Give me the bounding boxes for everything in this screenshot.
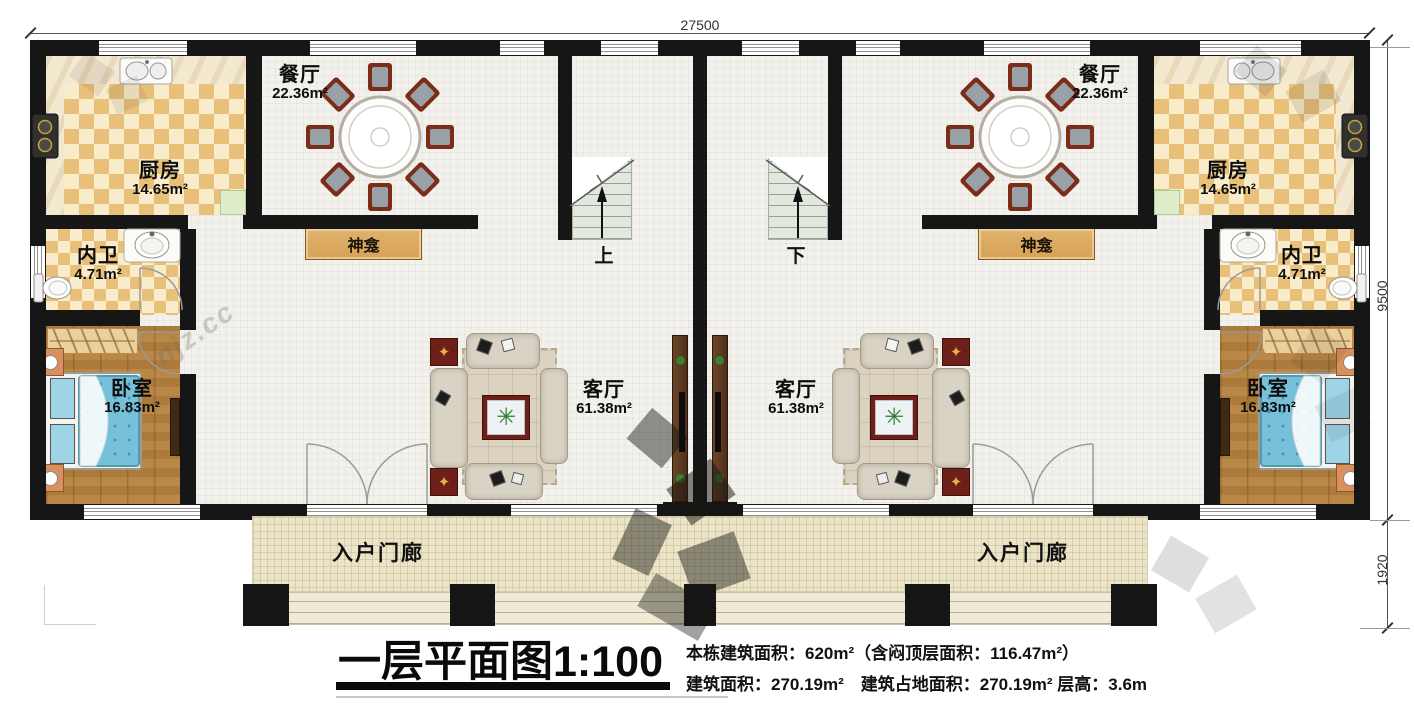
- plant-icon: ✳: [496, 406, 516, 430]
- end-table-left-top: ✦: [430, 338, 458, 366]
- window: [856, 41, 900, 55]
- dimension-extension: [1370, 47, 1410, 48]
- watermark-smudge-bottomright: [1150, 540, 1260, 635]
- room-label-bedroom-left: 卧室 16.83m²: [72, 378, 192, 417]
- info-line-1: 本栋建筑面积：620m²（含闷顶层面积：116.47m²）: [686, 639, 1079, 664]
- room-label-bathroom-right: 内卫 4.71m²: [1244, 245, 1360, 284]
- room-label-kitchen-right: 厨房 14.65m²: [1168, 160, 1288, 199]
- lamp-icon: ✦: [950, 345, 963, 360]
- room-label-living-right: 客厅 61.38m²: [736, 379, 856, 418]
- porch-label-right: 入户门廊: [958, 537, 1088, 567]
- wall-stair-left: [558, 40, 572, 240]
- shrine-right-label: 神龛: [1020, 232, 1052, 256]
- shrine-right: 神龛: [978, 228, 1095, 260]
- wall-stair-right: [828, 40, 842, 240]
- porch-column: [243, 584, 289, 626]
- wall-bath-bedroom-divider-left: [30, 310, 140, 326]
- stair-direction-left: 上: [584, 241, 624, 268]
- window: [84, 505, 200, 519]
- coffee-table-right: ✳: [870, 395, 918, 440]
- room-label-living-left: 客厅 61.38m²: [544, 379, 664, 418]
- watermark-smudge-topleft: [70, 55, 150, 115]
- dimension-top-width: 27500: [660, 17, 740, 33]
- window: [984, 41, 1090, 55]
- lamp-icon: ✦: [950, 475, 963, 490]
- wall-bath-bedroom-divider-right: [1260, 310, 1370, 326]
- wall-bath-bed-right-upper: [1204, 229, 1220, 330]
- window: [500, 41, 544, 55]
- dimension-line-top: [30, 33, 1370, 34]
- kitchen-left-pad: [220, 190, 246, 215]
- lamp-icon: ✦: [438, 475, 451, 490]
- window: [601, 41, 658, 55]
- porch-column: [450, 584, 495, 626]
- bed-left-pillow: [50, 424, 75, 464]
- wall-dining-bottom-right2: [1212, 215, 1354, 229]
- end-table-right-bottom: ✦: [942, 468, 970, 496]
- room-label-bathroom-left: 内卫 4.71m²: [40, 245, 156, 284]
- window: [99, 41, 187, 55]
- sofa-left-side: [430, 368, 468, 468]
- title-underline-thin: [336, 696, 728, 698]
- room-label-dining-right: 餐厅 22.36m²: [1040, 64, 1160, 103]
- dimension-side-height: 9500: [1374, 266, 1390, 326]
- room-label-kitchen-left: 厨房 14.65m²: [100, 160, 220, 199]
- info-line-2: 建筑面积：270.19m² 建筑占地面积：270.19m² 层高：3.6m: [686, 670, 1147, 695]
- shrine-left: 神龛: [305, 228, 422, 260]
- title-underline: [336, 682, 670, 690]
- plant-icon: [715, 356, 724, 365]
- watermark-smudge-center: [612, 418, 772, 633]
- porch-label-left: 入户门廊: [313, 537, 443, 567]
- plant-icon: ✳: [884, 406, 904, 430]
- corner-extension-mark: [44, 624, 96, 625]
- corner-extension-mark: [44, 585, 45, 625]
- dimension-extension: [1370, 520, 1410, 521]
- window: [310, 41, 416, 55]
- coffee-table-left: ✳: [482, 395, 530, 440]
- watermark-smudge-topright: [1235, 48, 1345, 138]
- wall-dining-bottom-right: [922, 215, 1157, 229]
- wall-dining-bottom-left: [46, 215, 188, 229]
- dimension-extension: [1360, 628, 1410, 629]
- end-table-left-bottom: ✦: [430, 468, 458, 496]
- plan-title: 一层平面图1:100: [338, 627, 663, 689]
- plant-icon: [676, 356, 685, 365]
- room-label-dining-left: 餐厅 22.36m²: [240, 64, 360, 103]
- wall-dining-bottom-left2: [243, 215, 478, 229]
- dimension-porch-depth: 1920: [1374, 540, 1390, 600]
- floor-plan-canvas: 27500 9500 1920 神龛 神龛: [0, 0, 1414, 709]
- sofa-right-top: [860, 333, 934, 369]
- window: [1200, 505, 1316, 519]
- window: [742, 41, 799, 55]
- porch-column: [905, 584, 950, 626]
- lamp-icon: ✦: [438, 345, 451, 360]
- end-table-right-top: ✦: [942, 338, 970, 366]
- shrine-left-label: 神龛: [347, 232, 379, 256]
- watermark-smudge-right: [1295, 325, 1375, 465]
- stair-direction-right: 下: [776, 241, 816, 268]
- sofa-right-side: [932, 368, 970, 468]
